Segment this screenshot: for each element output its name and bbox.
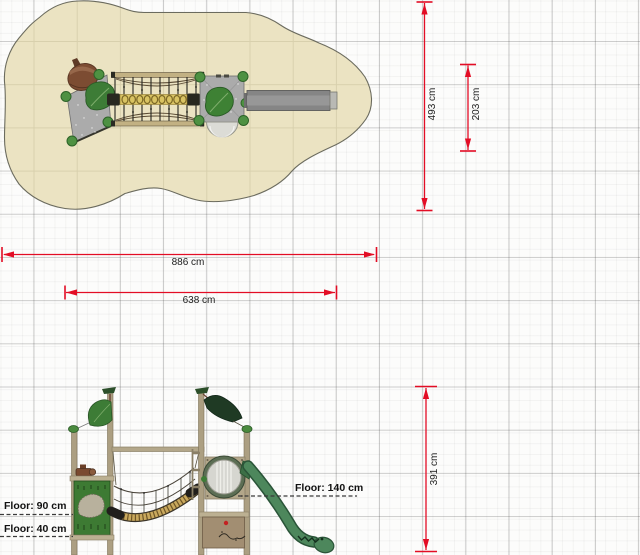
- top-view: [4, 1, 371, 209]
- floor-140-label: Floor: 140 cm: [295, 482, 363, 494]
- slide-top: [244, 91, 337, 111]
- dim-label-inner-width: 638 cm: [169, 295, 229, 307]
- porthole: [201, 456, 247, 499]
- top-rail-side: [112, 447, 204, 452]
- lower-panel: [199, 512, 249, 548]
- slide-side: [240, 461, 336, 555]
- dim-label-outer-width: 886 cm: [158, 257, 218, 269]
- floor-40-label: Floor: 40 cm: [4, 523, 66, 535]
- left-tower: [69, 387, 117, 555]
- dim-label-side-height: 391 cm: [429, 439, 441, 499]
- dim-label-inner-depth: 203 cm: [471, 74, 483, 134]
- playground-plan-drawing: [0, 0, 640, 555]
- side-view: [69, 387, 336, 555]
- dim-label-outer-depth: 493 cm: [427, 74, 439, 134]
- floor-90-label: Floor: 90 cm: [4, 500, 66, 512]
- climbing-panel: [70, 476, 114, 540]
- leaf-canopy-right-side: [204, 395, 242, 422]
- drawing-canvas: 886 cm 638 cm 493 cm 203 cm 391 cm Floor…: [0, 0, 640, 555]
- red-dot: [224, 521, 228, 525]
- leaf-canopy-left-side: [88, 400, 112, 427]
- net-bridge-side: [111, 452, 199, 519]
